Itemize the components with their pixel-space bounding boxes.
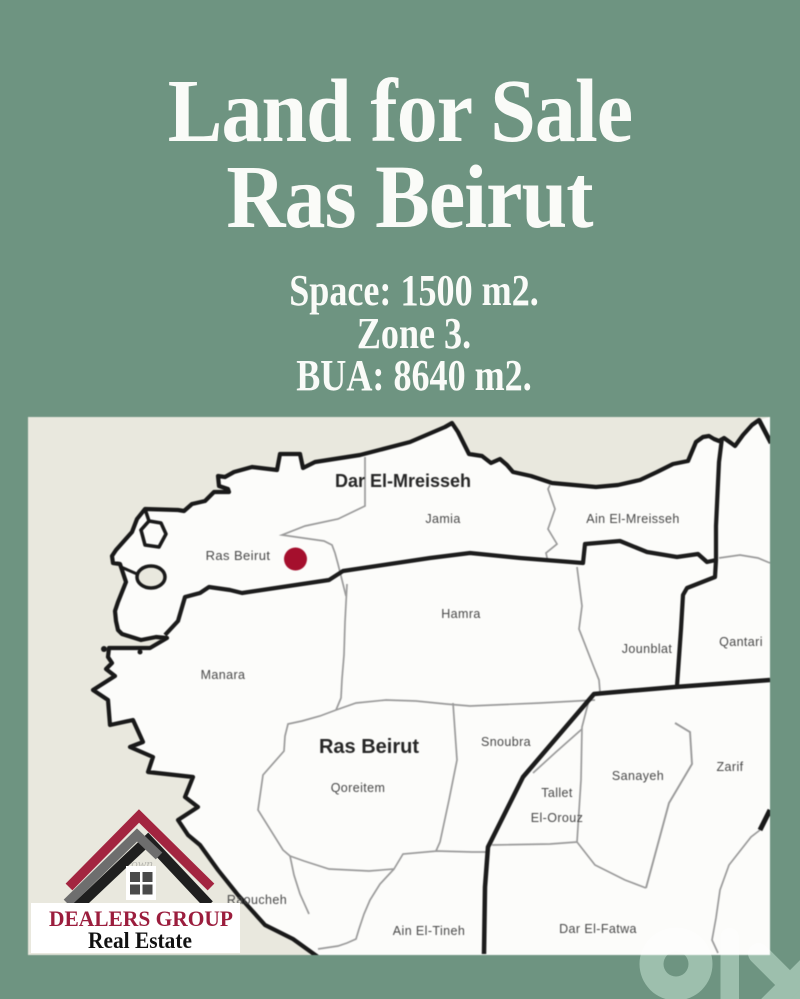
svg-text:Real Estate: Real Estate xyxy=(88,928,192,953)
svg-text:Snoubra: Snoubra xyxy=(481,735,531,749)
svg-text:Tallet: Tallet xyxy=(541,786,573,800)
svg-text:Qoreitem: Qoreitem xyxy=(331,781,386,795)
svg-text:Zarif: Zarif xyxy=(717,760,744,774)
svg-text:Ain El-Tineh: Ain El-Tineh xyxy=(393,924,465,938)
svg-text:Dar El-Mreisseh: Dar El-Mreisseh xyxy=(335,471,471,491)
svg-text:Jamia: Jamia xyxy=(425,512,460,526)
svg-text:Ras Beirut: Ras Beirut xyxy=(206,548,271,563)
svg-text:Jounblat: Jounblat xyxy=(622,642,673,656)
svg-text:Ain El-Mreisseh: Ain El-Mreisseh xyxy=(586,512,680,526)
svg-text:Manara: Manara xyxy=(201,668,246,682)
svg-text:Sanayeh: Sanayeh xyxy=(612,769,664,783)
svg-text:Qantari: Qantari xyxy=(719,635,763,649)
svg-text:Ras Beirut: Ras Beirut xyxy=(319,736,419,758)
svg-text:Hamra: Hamra xyxy=(441,607,481,621)
svg-text:El-Orouz: El-Orouz xyxy=(531,811,584,825)
